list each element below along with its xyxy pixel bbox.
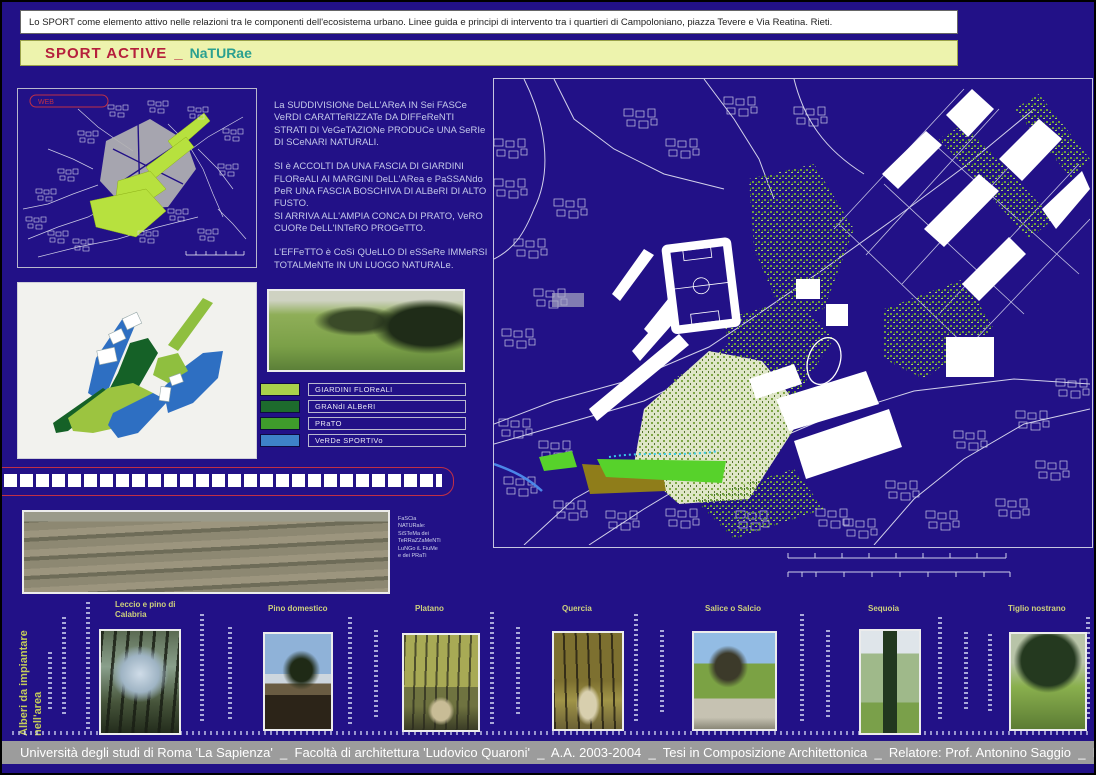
legend-swatch <box>260 417 300 430</box>
description-paragraph: SI ARRIVA ALL'AMPIA CONCA DI PRATO, VeRO… <box>274 211 488 236</box>
separator-squares <box>4 474 442 487</box>
master-plan-map <box>493 78 1093 548</box>
species-note-column <box>826 630 830 718</box>
footer-text: Università degli studi di Roma 'La Sapie… <box>2 745 1096 760</box>
tree-label: Tiglio nostrano <box>1008 604 1066 614</box>
tree-label: Pino domestico <box>268 604 328 614</box>
page-title: SPORT ACTIVE <box>45 45 167 62</box>
species-note-column <box>660 630 664 715</box>
top-banner: Lo SPORT come elemento attivo nelle rela… <box>20 10 958 34</box>
tree-photo-quercia <box>552 631 624 731</box>
species-note-column <box>516 627 520 715</box>
thesis-board: Lo SPORT come elemento attivo nelle rela… <box>0 0 1096 775</box>
species-note-column <box>634 614 638 722</box>
legend-swatch <box>260 383 300 396</box>
species-note-column <box>348 617 352 727</box>
legend-swatch <box>260 400 300 413</box>
tree-label: Quercia <box>562 604 592 614</box>
species-note-column <box>86 602 90 732</box>
legend-label-box: VeRDe SPORTIVo <box>308 434 466 447</box>
legend-row: PRaTO <box>260 417 466 430</box>
concept-plan <box>17 282 257 459</box>
svg-text:WEB: WEB <box>38 99 54 106</box>
overview-map: WEB <box>17 88 257 268</box>
terraces-panorama-photo <box>22 510 390 594</box>
tree-photo-platano <box>402 633 480 732</box>
species-note-column <box>938 617 942 722</box>
tree-photo-salice <box>692 631 777 731</box>
species-note-column <box>200 614 204 724</box>
species-note-column <box>374 630 378 720</box>
species-note-column <box>62 617 66 717</box>
legend-label-box: PRaTO <box>308 417 466 430</box>
legend-label-box: GRANdI ALBeRI <box>308 400 466 413</box>
description-paragraph: La SUDDIVISIONe DeLL'AReA IN Sei FASCe V… <box>274 100 488 149</box>
species-note-column <box>800 614 804 724</box>
master-plan-drawing <box>494 79 1090 545</box>
soccer-field <box>661 237 741 335</box>
title-separator: _ <box>174 45 182 62</box>
tree-photo-pino-domestico <box>263 632 333 731</box>
legend-label-box: GIARDINI FLOReALI <box>308 383 466 396</box>
overview-scale-bar <box>186 251 244 255</box>
concept-plan-drawing <box>18 283 254 456</box>
banner-text: Lo SPORT come elemento attivo nelle rela… <box>29 17 832 28</box>
description-paragraph: SI è ACCOLTI DA UNA FASCIA DI GIARDINI F… <box>274 161 488 210</box>
species-note-column <box>228 627 232 722</box>
vegetation-legend: GIARDINI FLOReALI GRANdI ALBeRI PRaTO Ve… <box>260 383 466 451</box>
tree-label: Platano <box>415 604 444 614</box>
overview-map-tag: WEB <box>30 95 108 107</box>
species-note-column <box>48 652 52 712</box>
legend-swatch <box>260 434 300 447</box>
landscape-photo <box>267 289 465 372</box>
legend-row: GRANdI ALBeRI <box>260 400 466 413</box>
page-subtitle: NaTURae <box>190 45 252 61</box>
map-scale-bars <box>782 550 1012 582</box>
footer-bar: Università degli studi di Roma 'La Sapie… <box>2 741 1096 764</box>
tree-section-label: Alberi da impiantare nell'area <box>18 600 52 736</box>
species-note-column <box>490 612 494 727</box>
overview-map-drawing: WEB <box>18 89 256 267</box>
species-note-column <box>988 634 992 712</box>
tree-label: Leccio e pino di Calabria <box>115 600 210 619</box>
panorama-caption: FaSCia NATURale: SiSTeMa dei TeRRaZZaMeN… <box>398 516 462 561</box>
tree-label: Salice o Salcio <box>705 604 761 614</box>
legend-row: GIARDINI FLOReALI <box>260 383 466 396</box>
tree-photo-tiglio <box>1009 632 1087 731</box>
tree-photo-sequoia <box>859 629 921 735</box>
title-bar: SPORT ACTIVE _ NaTURae <box>20 40 958 66</box>
tree-photo-leccio <box>99 629 181 735</box>
description-paragraph: L'EFFeTTO è CoSì QUeLLO DI eSSeRe IMMeRS… <box>274 247 488 272</box>
tree-label: Sequoia <box>868 604 899 614</box>
species-note-column <box>964 632 968 712</box>
legend-row: VeRDe SPORTIVo <box>260 434 466 447</box>
project-description: La SUDDIVISIONe DeLL'AReA IN Sei FASCe V… <box>274 100 488 272</box>
